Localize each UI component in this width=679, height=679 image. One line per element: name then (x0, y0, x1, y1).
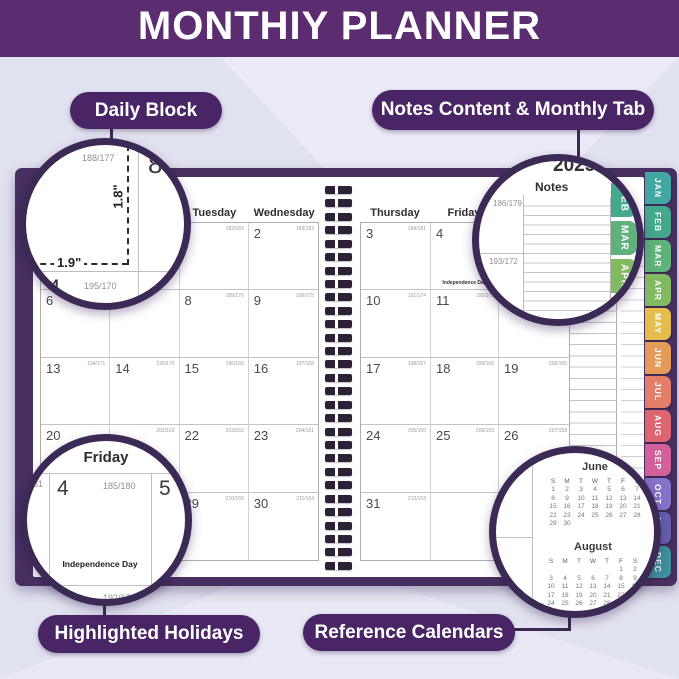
mini-cal-week: 12 (538, 563, 648, 571)
day-number: 18 (436, 361, 450, 376)
day-cell: 23204/161 (249, 425, 318, 492)
mini-cal-week: 15161718192021 (540, 500, 650, 508)
day-cell: 2183/182 (249, 223, 318, 290)
day-number: 13 (46, 361, 60, 376)
spiral-binding (325, 186, 352, 570)
mag-doy-185: 185/180 (103, 481, 136, 491)
day-cell: 8189/176 (180, 290, 249, 357)
year-label: 2025 (553, 155, 595, 177)
callout-reference-calendars: Reference Calendars (303, 614, 515, 651)
mini-cal-week: 3456789 (538, 572, 648, 580)
day-cell: 15196/169 (180, 358, 249, 425)
day-of-year: 182/183 (226, 226, 244, 232)
day-of-year: 207/158 (549, 428, 567, 434)
spiral-coil (325, 414, 352, 422)
day-number: 22 (185, 428, 199, 443)
spiral-coil (325, 374, 352, 382)
day-cell: 22203/162 (180, 425, 249, 492)
day-of-year: 184/181 (408, 226, 426, 232)
day-cell: 18199/166 (431, 358, 499, 425)
day-cell: 9190/175 (249, 290, 318, 357)
notes-header: Notes (535, 180, 568, 194)
day-cell: 30211/154 (249, 493, 318, 560)
day-cell: 14195/170 (110, 358, 179, 425)
day-of-year: 194/171 (87, 361, 105, 367)
spiral-coil (325, 548, 352, 556)
spiral-coil (325, 334, 352, 342)
mag-day-5: 5 (159, 477, 171, 501)
day-of-year: 204/161 (296, 428, 314, 434)
spiral-coil (325, 186, 352, 194)
day-number: 26 (504, 428, 518, 443)
day-of-year: 195/170 (156, 361, 174, 367)
spiral-coil (325, 535, 352, 543)
height-label: 1.8" (111, 182, 126, 210)
mag-day-7: 7 (36, 149, 50, 180)
day-number: 19 (504, 361, 518, 376)
spiral-coil (325, 495, 352, 503)
day-number: 17 (366, 361, 380, 376)
day-number: 24 (366, 428, 380, 443)
month-tab-jul: JUL (645, 376, 671, 408)
spiral-coil (325, 468, 352, 476)
holiday-label: Independence Day (49, 559, 151, 569)
spiral-coil (325, 320, 352, 328)
callout-daily-block: Daily Block (70, 92, 222, 129)
spiral-coil (325, 441, 352, 449)
mini-cal-week: 1234567 (540, 483, 650, 491)
mag-day-8: 8 (148, 149, 162, 180)
mag-day-14: 14 (34, 275, 61, 303)
mini-cal-title: August (538, 541, 648, 553)
day-cell: 19200/165 (499, 358, 571, 425)
mini-cal-week: 2930 (540, 517, 650, 525)
spiral-coil (325, 199, 352, 207)
spiral-coil (325, 401, 352, 409)
friday-header: Friday (27, 449, 185, 466)
day-of-year: 199/166 (476, 361, 494, 367)
month-tab-may: MAY (645, 308, 671, 340)
callout-highlighted-holidays: Highlighted Holidays (38, 615, 260, 653)
day-number: 2 (254, 226, 261, 241)
month-tab-mar: MAR (645, 240, 671, 272)
mini-calendar-august: AugustSMTWTFS123456789101112131415161718… (538, 541, 648, 614)
connector-reference-h (512, 628, 571, 631)
month-tab-jan: JAN (645, 172, 671, 204)
saturday-header-partial: ay (485, 181, 497, 193)
spiral-coil (325, 347, 352, 355)
magnifier-reference: JuneSMTWTFS12345678910111213141516171819… (489, 446, 661, 618)
day-number: 9 (254, 293, 261, 308)
mini-calendar-june: JuneSMTWTFS12345678910111213141516171819… (540, 461, 650, 525)
magnified-month-tab: APR (611, 259, 637, 293)
magnifier-notes-tab: 2025 ay Notes 186/179 193/172 FEBMARAPR (472, 154, 644, 326)
day-number: 4 (436, 226, 443, 241)
spiral-coil (325, 307, 352, 315)
width-label: 1.9" (54, 255, 84, 270)
mag-day-4: 4 (57, 477, 69, 501)
day-header: Thursday (360, 204, 430, 222)
spiral-coil (325, 387, 352, 395)
mag-doy-193: 193/172 (489, 257, 518, 266)
mini-cal-week: 17181920212223 (538, 589, 648, 597)
month-tab-feb: FEB (645, 206, 671, 238)
callout-notes-monthly-tab: Notes Content & Monthly Tab (372, 90, 654, 130)
day-of-year: 200/165 (549, 361, 567, 367)
spiral-coil (325, 360, 352, 368)
day-of-year: 191/174 (408, 293, 426, 299)
page-title: MONTHIY PLANNER (0, 4, 679, 49)
spiral-coil (325, 454, 352, 462)
spiral-coil (325, 213, 352, 221)
day-number: 14 (115, 361, 129, 376)
spiral-coil (325, 226, 352, 234)
mag-doy-188: 188/177 (82, 153, 115, 163)
day-number: 31 (366, 496, 380, 511)
day-number: 10 (366, 293, 380, 308)
spiral-coil (325, 481, 352, 489)
mag-day-12: 12 (159, 589, 182, 606)
height-measure-line (127, 145, 129, 265)
spiral-coil (325, 293, 352, 301)
month-tab-aug: AUG (645, 410, 671, 442)
day-of-year: 212/153 (408, 496, 426, 502)
spiral-coil (325, 522, 352, 530)
month-tab-apr: APR (645, 274, 671, 306)
day-cell: 31212/153 (361, 493, 431, 560)
day-cell: 16197/168 (249, 358, 318, 425)
spiral-coil (325, 240, 352, 248)
mag-doy-186: 186/179 (493, 199, 522, 208)
mini-cal-week: 891011121314 (540, 492, 650, 500)
spiral-coil (325, 428, 352, 436)
day-of-year: 197/168 (296, 361, 314, 367)
product-infographic: MONTHIY PLANNER TuesdayWednesday 182/183… (0, 0, 679, 679)
day-cell: 13194/171 (41, 358, 110, 425)
day-header: Wednesday (249, 204, 319, 222)
day-of-year: 211/154 (296, 496, 314, 502)
month-tab-jun: JUN (645, 342, 671, 374)
spiral-coil (325, 267, 352, 275)
day-of-year: 206/159 (476, 428, 494, 434)
mag-doy-195: 195/170 (84, 281, 117, 291)
day-of-year: 189/176 (226, 293, 244, 299)
day-of-year: 190/175 (296, 293, 314, 299)
mini-cal-week: 10111213141516 (538, 580, 648, 588)
mini-cal-week: 22232425262728 (540, 509, 650, 517)
day-of-year: 198/167 (408, 361, 426, 367)
day-number: 23 (254, 428, 268, 443)
mini-cal-title: June (540, 461, 650, 473)
spiral-coil (325, 253, 352, 261)
magnifier-holidays: Friday 181 4 185/180 5 Independence Day … (20, 434, 192, 606)
day-cell: 10191/174 (361, 290, 431, 357)
mini-cal-week: 31 (538, 605, 648, 613)
day-cell: 24205/160 (361, 425, 431, 492)
connector-notes (577, 128, 580, 158)
day-number: 3 (366, 226, 373, 241)
day-of-year: 196/169 (226, 361, 244, 367)
spiral-coil (325, 280, 352, 288)
day-of-year: 183/182 (296, 226, 314, 232)
day-number: 11 (436, 293, 450, 308)
day-cell: 3184/181 (361, 223, 431, 290)
day-cell: 25206/159 (431, 425, 499, 492)
notes-lines (524, 197, 611, 319)
mag-doy-192: 192/173 (103, 593, 136, 603)
day-number: 16 (254, 361, 268, 376)
spiral-coil (325, 508, 352, 516)
day-of-year: 203/162 (226, 428, 244, 434)
mag-doy-181: 181 (28, 479, 43, 489)
day-cell: 17198/167 (361, 358, 431, 425)
day-number: 25 (436, 428, 450, 443)
mag-day-11: 11 (57, 589, 79, 606)
magnified-month-tab: MAR (611, 221, 637, 255)
mini-cal-week: 24252627282930 (538, 597, 648, 605)
day-number: 8 (185, 293, 192, 308)
spiral-coil (325, 562, 352, 570)
magnified-month-tab: FEB (611, 183, 637, 217)
day-number: 30 (254, 496, 268, 511)
day-of-year: 202/163 (156, 428, 174, 434)
day-of-year: 210/155 (226, 496, 244, 502)
day-number: 15 (185, 361, 199, 376)
day-of-year: 205/160 (408, 428, 426, 434)
magnifier-daily-block: 7 188/177 8 1.8" 1.9" 14 195/170 (19, 138, 191, 310)
